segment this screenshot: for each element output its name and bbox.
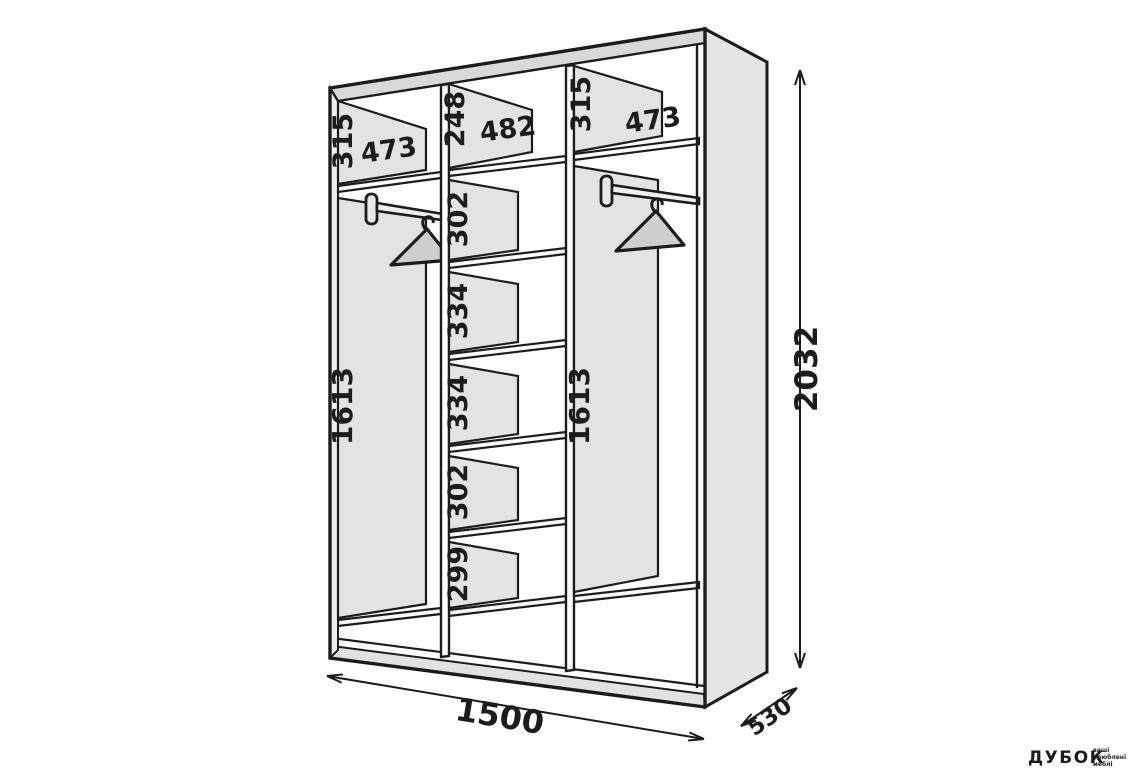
label-overall-height: 2032 — [789, 326, 825, 412]
label-middle-top-height: 248 — [440, 91, 471, 147]
label-middle-comp4: 302 — [443, 464, 474, 520]
label-left-hanging-height: 1613 — [326, 367, 359, 445]
label-middle-comp1: 302 — [443, 191, 474, 247]
wardrobe-dimension-diagram: 315 473 248 482 315 473 1613 1613 302 33… — [0, 0, 1130, 773]
left-rod-bracket — [366, 194, 377, 224]
right-rod-bracket — [601, 176, 612, 206]
side-panel — [705, 29, 767, 707]
label-middle-comp2: 334 — [443, 283, 474, 339]
watermark-tagline-line3: меблі — [1093, 761, 1113, 768]
label-overall-depth: 530 — [743, 693, 797, 742]
brand-watermark: ДУБОК ваші улюблені меблі — [1028, 747, 1126, 768]
label-right-top-height: 315 — [566, 76, 597, 132]
dimension-height: 2032 — [789, 70, 825, 668]
label-middle-comp5: 299 — [443, 546, 474, 602]
watermark-tagline-line2: улюблені — [1093, 754, 1126, 761]
label-left-top-height: 315 — [328, 113, 359, 169]
diagram-canvas: 315 473 248 482 315 473 1613 1613 302 33… — [0, 0, 1130, 773]
dimension-depth: 530 — [741, 688, 797, 742]
label-right-hanging-height: 1613 — [563, 367, 596, 445]
label-middle-comp3: 334 — [443, 375, 474, 431]
watermark-tagline-line1: ваші — [1093, 747, 1109, 754]
label-overall-width: 1500 — [453, 690, 547, 742]
